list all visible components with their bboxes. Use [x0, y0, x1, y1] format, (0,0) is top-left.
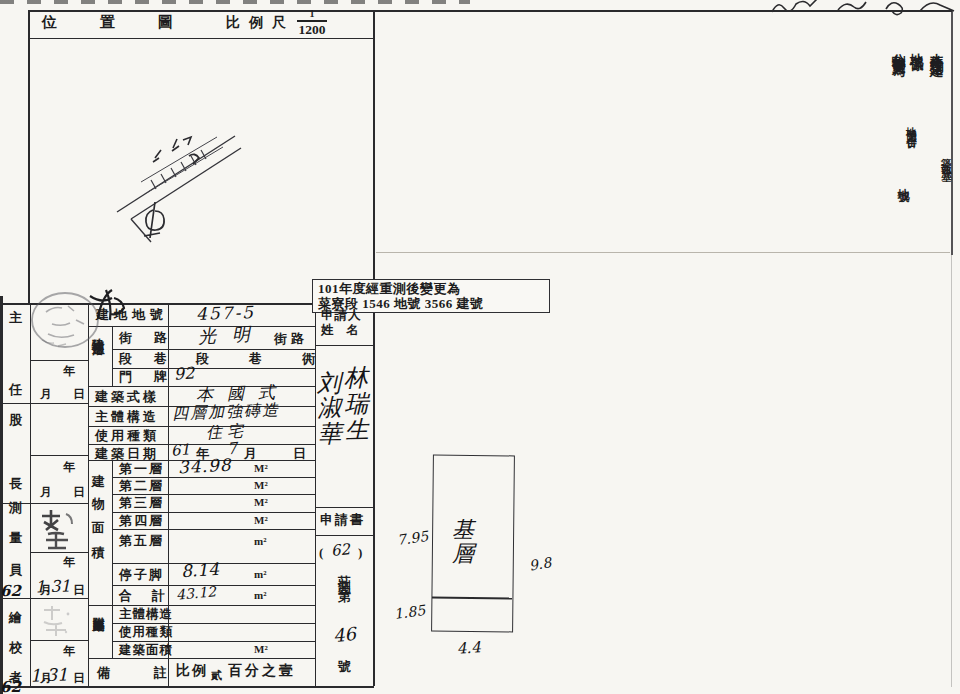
scale-fraction: 1 1200: [288, 9, 336, 37]
scale-label: 比例尺: [226, 16, 295, 31]
divider-line: [88, 303, 89, 686]
style-label: 建築式樣: [95, 390, 159, 404]
day-label: 日: [73, 672, 85, 685]
margin-note-62: 62: [0, 680, 21, 694]
applicant-header-1: 申請人: [321, 309, 362, 322]
divider-line: [2, 403, 88, 404]
scale-denominator: 1200: [288, 23, 336, 38]
scale-numerator: 1: [288, 9, 336, 19]
official-label: 繪: [9, 611, 22, 625]
notice-col1-main: 本件建物之建: [929, 42, 943, 54]
build-date-label: 建築日期: [95, 447, 159, 461]
divider-line: [112, 623, 315, 624]
file-prefix: 莊測字第: [337, 565, 350, 585]
remarks-small: 貳: [211, 670, 222, 682]
divider-line: [112, 641, 315, 642]
structure-value: 四層加強磚造: [172, 402, 280, 422]
margin-note-62: 62: [0, 584, 21, 599]
remarks-prefix: 比例: [176, 664, 208, 679]
official-label: 測: [9, 501, 22, 515]
file-year: 62: [330, 542, 351, 559]
annex-structure-label: 主體構造: [119, 608, 173, 621]
official-label: 任: [9, 383, 22, 397]
plan-dim-bottom: 4.4: [457, 640, 482, 657]
street-value: 光明: [198, 324, 267, 346]
usage-value: 住宅: [206, 423, 249, 441]
floor-label: 第四層: [119, 514, 164, 528]
divider-line: [112, 326, 113, 386]
day-label: 日: [73, 388, 85, 401]
divider-line: [88, 605, 315, 606]
divider-line: [951, 255, 952, 687]
notice-col3-sub: 地號: [897, 178, 910, 184]
file-number: 46: [332, 625, 357, 645]
annex-group-label: 附屬建築: [92, 607, 105, 611]
divider-line: [30, 640, 88, 641]
file-paren-close: ): [358, 546, 362, 560]
official-label: 員: [9, 563, 22, 577]
divider-line: [0, 296, 3, 694]
remarks-suffix: 百分之壹: [228, 664, 296, 679]
surveyor-date: 1.31: [35, 578, 71, 595]
total-value: 43.12: [175, 584, 216, 601]
scanned-survey-document: 位置圖 比例尺 1 1200 本件建物之建 築執照基 地號係 地號因合併 分割後…: [0, 0, 960, 694]
year-label: 年: [63, 645, 75, 658]
official-label: 長: [9, 477, 22, 491]
floor-unit: M²: [254, 497, 268, 509]
floor-unit: m²: [254, 536, 266, 548]
day-label: 日: [73, 584, 85, 597]
area-group-label: 建物面積: [91, 463, 105, 559]
application-doc-label: 申請書: [320, 513, 365, 527]
divider-line: [315, 507, 374, 508]
divider-line: [88, 426, 315, 427]
applicant-name-right: 林瑞生: [343, 346, 368, 424]
porch-unit: m²: [254, 569, 266, 581]
year-label: 年: [63, 365, 75, 378]
plan-dim-left-lower: 1.85: [393, 603, 426, 621]
divider-line: [88, 444, 315, 445]
structure-label: 主體構造: [95, 410, 159, 424]
divider-line: [88, 658, 315, 659]
floor-label: 第五層: [119, 534, 164, 548]
divider-line: [30, 455, 88, 456]
floor-value: 34.98: [178, 457, 232, 477]
usage-label: 使用種類: [95, 429, 159, 443]
plan-dim-right: 9.8: [528, 555, 552, 573]
divider-line: [315, 535, 374, 536]
month-label: 月: [40, 486, 52, 499]
notice-col3-main: 分割後變更為: [891, 42, 905, 54]
signature-scribble-icon: [768, 0, 958, 16]
year-label: 年: [63, 461, 75, 474]
doc-title: 位置圖: [42, 15, 216, 31]
divider-line: [112, 460, 113, 658]
notice-col2-main: 地號係: [909, 42, 923, 48]
divider-line: [30, 360, 88, 361]
floor-label: 第三層: [119, 496, 164, 510]
lot-number-value: 457-5: [196, 304, 256, 323]
porch-value: 8.14: [180, 561, 219, 581]
month-label: 月: [40, 388, 52, 401]
official-label: 校: [9, 641, 22, 655]
floor-unit: M²: [254, 515, 268, 527]
porch-label: 停子脚: [119, 568, 164, 582]
divider-line: [112, 529, 315, 530]
divider-line: [373, 10, 375, 686]
floor-label: 第二層: [119, 479, 164, 493]
house-number-value: 92: [173, 365, 194, 382]
plan-dim-left: 7.95: [396, 529, 429, 547]
divider-line: [951, 10, 953, 255]
day-label: 日: [73, 486, 85, 499]
divider-line: [28, 10, 30, 303]
scan-smear: [0, 0, 470, 4]
official-label: 主: [9, 311, 22, 325]
applicant-header-2: 姓名: [321, 324, 372, 337]
annex-area-label: 建築面積: [119, 644, 173, 657]
total-unit: m²: [254, 590, 266, 602]
divider-line: [28, 38, 374, 39]
floor-unit: M²: [254, 480, 268, 492]
floor-unit: M²: [254, 463, 268, 475]
surveyor-stamp-icon: [34, 506, 80, 552]
checker-date: 1.31: [30, 666, 68, 684]
floor-label: 第一層: [119, 462, 164, 476]
build-date-day-unit: 日: [293, 447, 306, 461]
applicant-name-left: 刘淑華: [316, 350, 341, 428]
notice-col2-sub: 地號因合併: [906, 118, 917, 133]
annex-usage-label: 使用種類: [119, 626, 173, 639]
street-suffix: 街路: [274, 332, 308, 346]
street-label: 街路: [119, 331, 189, 345]
checker-stamp-icon: [36, 602, 80, 640]
year-label: 年: [63, 556, 75, 569]
divider-line: [30, 552, 88, 553]
annex-area-unit: M²: [254, 644, 268, 656]
divider-line: [112, 349, 315, 350]
divider-line: [376, 252, 950, 253]
notice-col1-sub: 築執照基: [941, 150, 952, 166]
plan-room-label: 基層: [452, 500, 474, 552]
location-group-label: 建物座落: [91, 328, 104, 334]
build-date-month-unit: 月: [244, 447, 257, 461]
location-map-sketch: [95, 118, 250, 248]
file-paren-open: (: [319, 546, 323, 560]
file-suffix: 號: [338, 660, 351, 674]
divider-line: [2, 686, 374, 688]
official-label: 量: [9, 531, 22, 545]
remeasure-line1: 101年度經重測後變更為: [318, 282, 544, 297]
lot-number-label: 建地地號: [96, 308, 168, 322]
official-label: 股: [9, 413, 22, 427]
